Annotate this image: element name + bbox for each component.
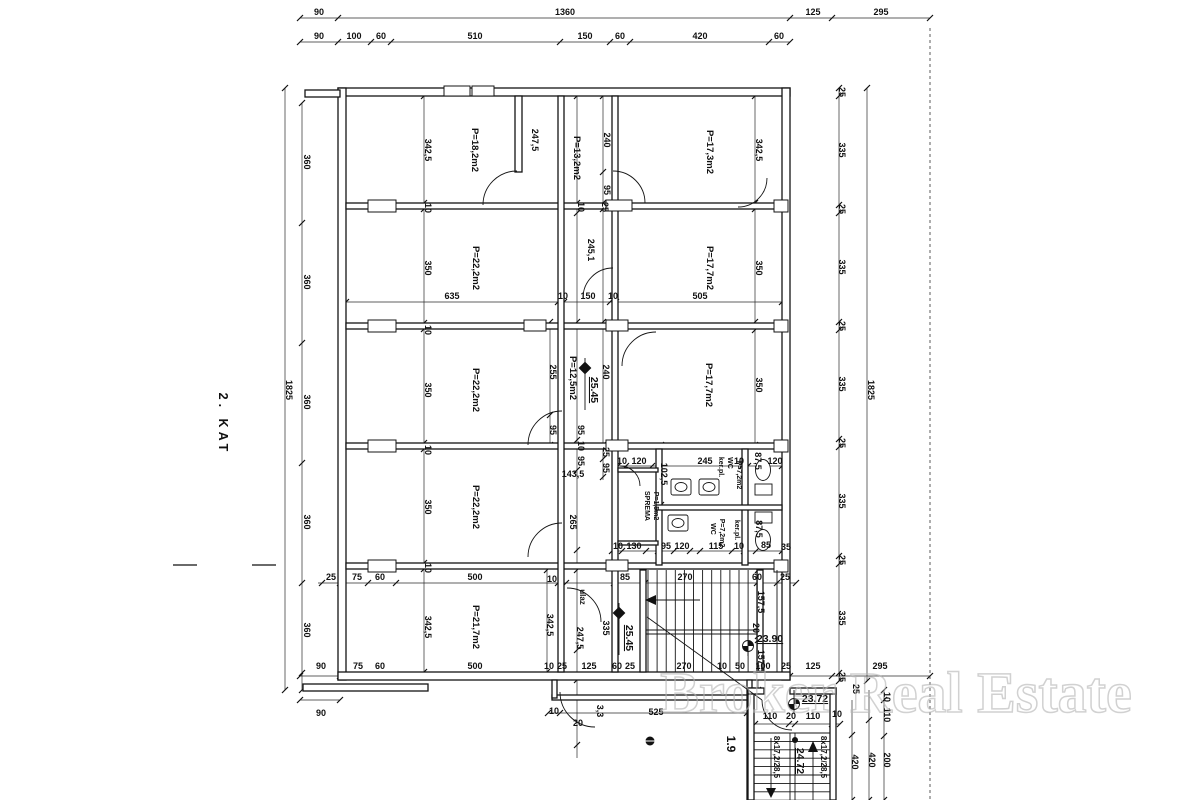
dim-label: 90 [316, 661, 326, 671]
stair-run-label: 8x17,2/28,5 [819, 736, 828, 779]
dim-label: 95 [661, 541, 671, 551]
dim-label: 25 [837, 438, 847, 448]
dim-label: 75 [352, 572, 362, 582]
dim-label: 342,5 [423, 139, 433, 162]
dim-label: 60 [612, 661, 622, 671]
dim-label: 20 [573, 718, 583, 728]
dim-label: 120 [767, 456, 782, 466]
dim-label: 335 [837, 259, 847, 274]
dim-label: 75 [353, 661, 363, 671]
dim-label: 247,5 [575, 627, 585, 650]
dim-label: 60 [752, 572, 762, 582]
room-area-label: P=18,2m2 [469, 128, 480, 172]
room-area-label: P=22,2m2 [470, 368, 481, 412]
elevation-label: 25.45 [588, 377, 600, 403]
dim-label: 25 [837, 204, 847, 214]
dim-label: 360 [302, 622, 312, 637]
floor-title: 2. KAT [216, 393, 230, 456]
plan-note-label: ulaz [578, 589, 587, 605]
dim-label: 10 [423, 325, 433, 335]
dim-label: 157,5 [756, 591, 766, 614]
floor-plan-page: 9013601252959010060510150604206063510150… [0, 0, 1200, 800]
dim-label: 420 [850, 754, 860, 769]
dim-label: 10 [423, 563, 433, 573]
dim-label: 200 [882, 752, 892, 767]
dim-label: 240 [602, 132, 612, 147]
dim-label: 360 [302, 394, 312, 409]
dim-label: 350 [754, 377, 764, 392]
dim-label: 25 [326, 572, 336, 582]
stair-run-label: 8x17,2/28,5 [772, 736, 781, 779]
dim-label: 350 [754, 260, 764, 275]
dim-label: 335 [601, 620, 611, 635]
plan-note-label: 1.9 [724, 736, 738, 753]
dim-label: 125 [805, 7, 820, 17]
dim-label: 87,5 [753, 452, 763, 470]
dim-label: 120 [631, 456, 646, 466]
dim-label: 95 [548, 425, 558, 435]
dim-label: 245,1 [586, 239, 596, 262]
dim-label: 90 [314, 31, 324, 41]
dim-label: 360 [302, 514, 312, 529]
dim-label: 10 [608, 291, 618, 301]
dim-label: 342,5 [754, 139, 764, 162]
dim-label: 90 [316, 708, 326, 718]
room-small-label: P=7,2m2 [718, 519, 725, 548]
room-small-label: WC [709, 523, 716, 535]
dim-label: 255 [548, 364, 558, 379]
dim-label: 25 [557, 661, 567, 671]
dim-label: 350 [423, 382, 433, 397]
room-area-label: P=17,7m2 [704, 246, 715, 290]
room-area-label: P=13,2m2 [571, 136, 582, 180]
room-small-label: P=1,5m2 [652, 492, 659, 521]
dim-label: 25 [600, 202, 610, 212]
dim-label: 87,5 [754, 520, 764, 538]
dim-label: 25 [601, 447, 611, 457]
elevation-label: 24.72 [794, 748, 806, 774]
dim-label: 10 [423, 203, 433, 213]
dim-label: 10 [544, 661, 554, 671]
dim-label: 60 [375, 572, 385, 582]
dim-label: 120 [674, 541, 689, 551]
dim-label: 150 [580, 291, 595, 301]
dim-label: 505 [692, 291, 707, 301]
dim-label: 245 [697, 456, 712, 466]
dim-label: 150 [577, 31, 592, 41]
dim-label: 1825 [284, 380, 294, 400]
dim-label: 20 [751, 623, 761, 633]
elevation-label: 23.90 [757, 633, 783, 645]
room-area-label: P=17,7m2 [703, 363, 714, 407]
dim-label: 25 [837, 555, 847, 565]
dim-label: 10 [613, 541, 623, 551]
dim-label: 1825 [866, 380, 876, 400]
dim-label: 335 [837, 376, 847, 391]
room-area-label: P=21,7m2 [470, 605, 481, 649]
dim-label: 335 [837, 493, 847, 508]
dim-label: 420 [867, 752, 877, 767]
watermark-text: Broker Real Estate [660, 660, 1131, 725]
dim-label: 1360 [555, 7, 575, 17]
dim-label: 130 [626, 541, 641, 551]
dim-label: 10 [547, 574, 557, 584]
dim-label: 60 [375, 661, 385, 671]
dim-label: 95 [602, 185, 612, 195]
dim-label: 35 [781, 542, 791, 552]
dim-label: 95 [576, 425, 586, 435]
dim-label: 95 [601, 463, 611, 473]
dim-label: 295 [873, 7, 888, 17]
dim-label: 335 [837, 142, 847, 157]
dim-label: 60 [774, 31, 784, 41]
room-small-label: SPREMA [643, 491, 650, 521]
dim-label: 25 [837, 321, 847, 331]
dim-label: 85 [761, 540, 771, 550]
dim-label: 125 [581, 661, 596, 671]
dim-label: 247,5 [530, 129, 540, 152]
dim-label: 10 [617, 456, 627, 466]
dim-label: 350 [423, 260, 433, 275]
elevation-label: 25.45 [623, 625, 635, 651]
dim-label: 143,5 [562, 469, 585, 479]
dim-label: 360 [302, 154, 312, 169]
room-small-label: P=7,2m2 [735, 461, 742, 490]
dim-label: 10 [423, 445, 433, 455]
dim-label: 500 [467, 572, 482, 582]
dim-label: 25 [625, 661, 635, 671]
dim-label: 60 [615, 31, 625, 41]
dim-label: 10 [558, 291, 568, 301]
dim-label: 510 [467, 31, 482, 41]
dim-label: 500 [467, 661, 482, 671]
dim-label: 95 [576, 456, 586, 466]
room-area-label: P=22,2m2 [470, 485, 481, 529]
dim-label: 360 [302, 274, 312, 289]
dim-label: 3,3 [595, 705, 605, 718]
dim-label: 350 [423, 499, 433, 514]
dim-label: 85 [620, 572, 630, 582]
room-small-label: WC [726, 457, 733, 469]
dim-label: 90 [314, 7, 324, 17]
dim-label: 10 [734, 541, 744, 551]
room-area-label: P=22,2m2 [470, 246, 481, 290]
room-small-label: ker.pl. [733, 520, 740, 540]
floor-plan-drawing: 9013601252959010060510150604206063510150… [0, 0, 1200, 800]
room-small-label: ker.pl. [717, 457, 724, 477]
dim-label: 100 [346, 31, 361, 41]
dim-label: 25 [837, 87, 847, 97]
dim-label: 342,5 [545, 614, 555, 637]
dim-label: 10 [549, 706, 559, 716]
dim-label: 10 [576, 202, 586, 212]
dim-label: 240 [601, 364, 611, 379]
dim-label: 102,5 [659, 463, 669, 486]
dim-label: 10 [576, 441, 586, 451]
room-area-label: P=17,3m2 [704, 130, 715, 174]
dim-label: 270 [677, 572, 692, 582]
dim-label: 342,5 [423, 616, 433, 639]
dim-label: 635 [444, 291, 459, 301]
dim-label: 335 [837, 610, 847, 625]
dim-label: 60 [376, 31, 386, 41]
dim-label: 265 [568, 514, 578, 529]
room-area-label: P=12,5m2 [567, 356, 578, 400]
dim-label: 420 [692, 31, 707, 41]
dim-label: 25 [780, 572, 790, 582]
